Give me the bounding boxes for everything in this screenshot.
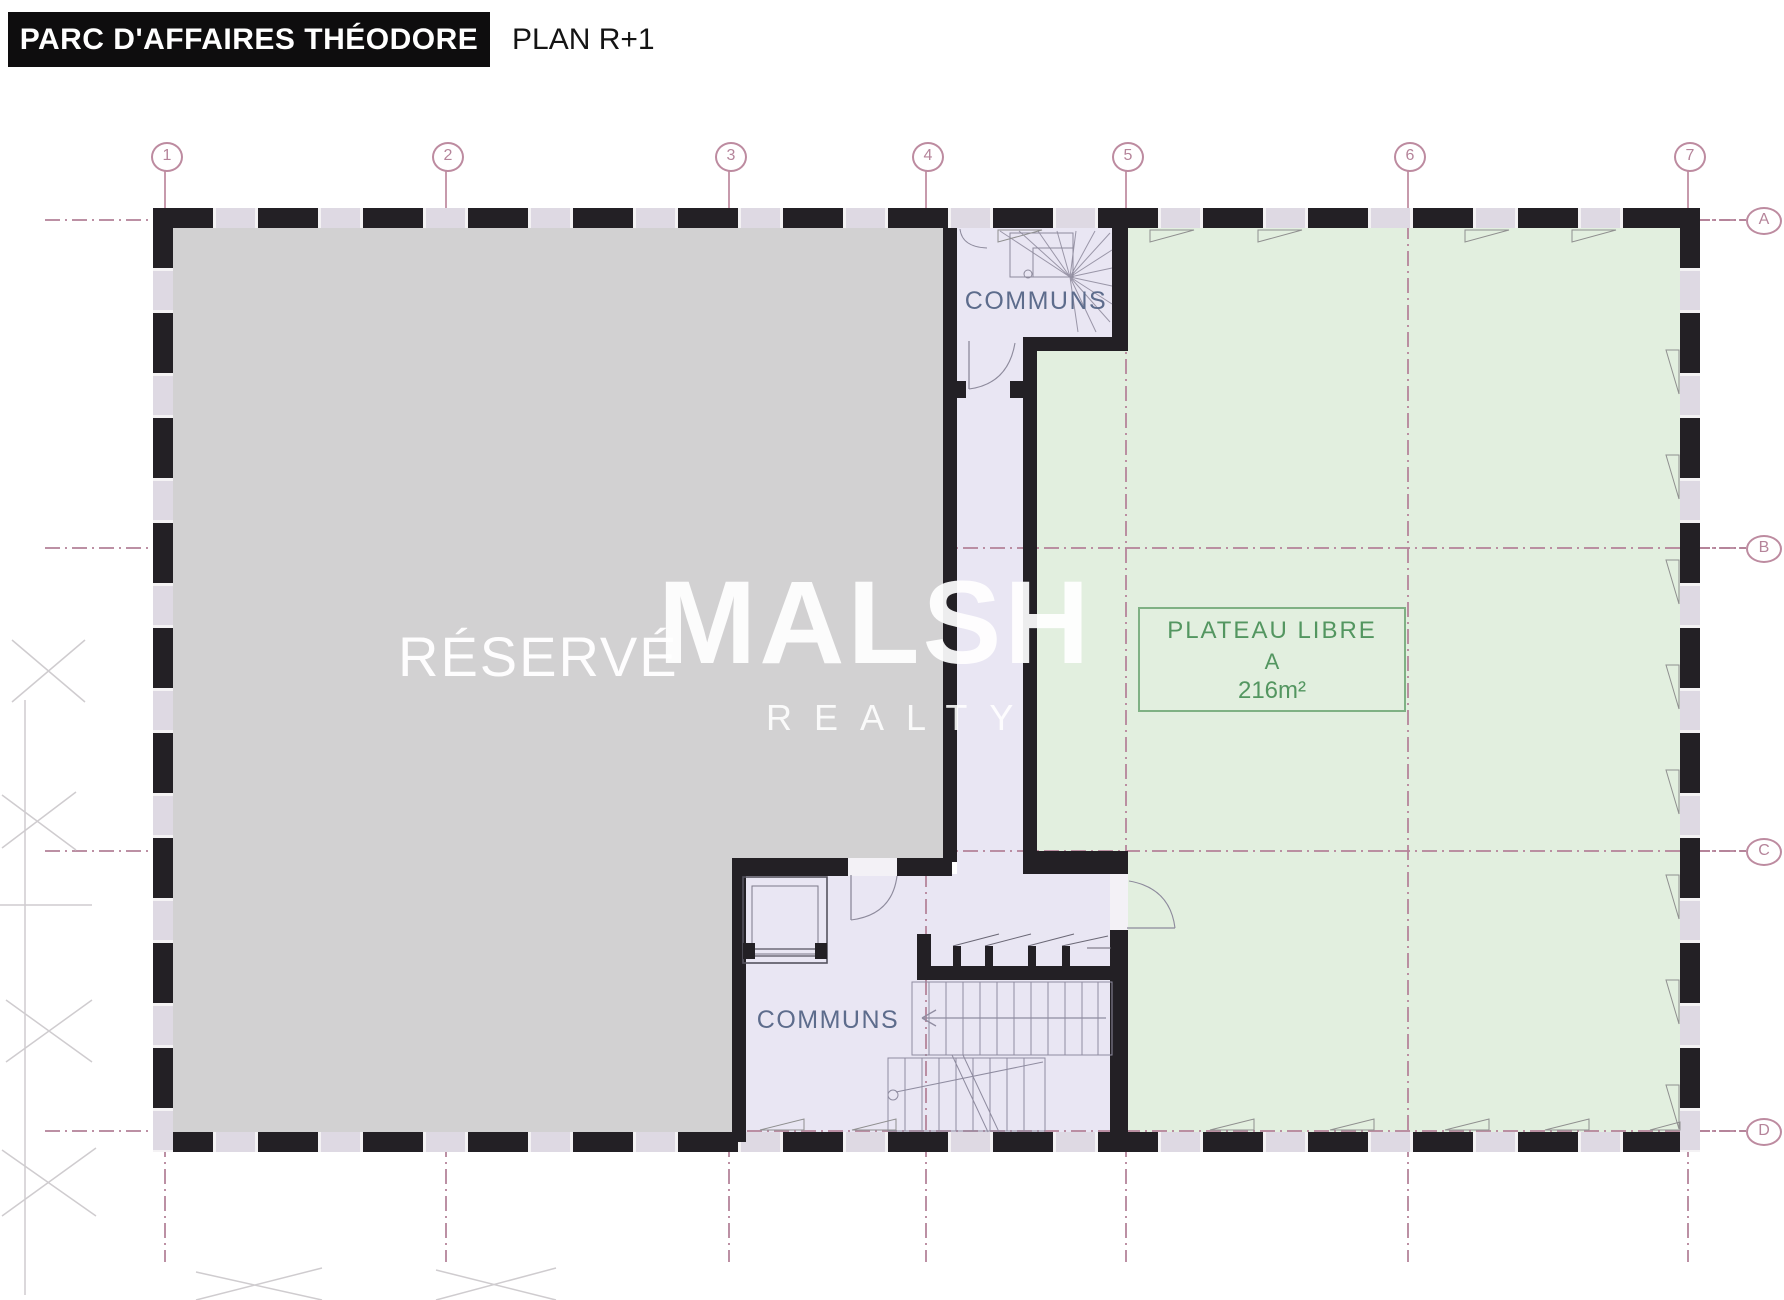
grid-marker-row-b: B: [1746, 535, 1782, 563]
commons-top-label: COMMUNS: [958, 287, 1114, 316]
grid-marker-row-a: A: [1746, 207, 1782, 235]
wall-west: [153, 208, 173, 1152]
grid-marker-col-3: 3: [715, 142, 747, 172]
plateau-area: 216m²: [1140, 677, 1404, 705]
wall-commons-bottom-west: [732, 858, 746, 1142]
grid-marker-col-5: 5: [1112, 142, 1144, 172]
wall-commons-bottom-north-right: [1023, 851, 1128, 874]
wall-commons-bottom-north-left1: [732, 858, 848, 876]
leader-col-4: [925, 168, 927, 208]
grid-line-col-6: [1407, 170, 1409, 1262]
project-title-banner: PARC D'AFFAIRES THÉODORE: [8, 12, 490, 67]
door-opening-reserved: [848, 858, 897, 876]
wall-corridor-west: [943, 228, 957, 862]
commons-bottom-label: COMMUNS: [748, 1006, 908, 1035]
leader-row-a: [1700, 219, 1746, 221]
leader-col-2: [445, 168, 447, 208]
leader-row-c: [1700, 850, 1746, 852]
wall-commons-top-south: [1023, 337, 1128, 351]
leader-row-d: [1700, 1130, 1746, 1132]
grid-marker-col-1: 1: [151, 142, 183, 172]
leader-row-b: [1700, 547, 1746, 549]
leader-col-5: [1125, 168, 1127, 208]
leader-col-6: [1407, 168, 1409, 208]
grid-marker-row-d: D: [1746, 1118, 1782, 1146]
wall-south: [153, 1132, 1700, 1152]
wall-commons-top-east: [1112, 228, 1128, 351]
door-opening-plateau: [1110, 874, 1128, 930]
grid-marker-col-6: 6: [1394, 142, 1426, 172]
grid-marker-col-2: 2: [432, 142, 464, 172]
brand-watermark: MALSH: [658, 555, 1093, 691]
plateau-title: PLATEAU LIBRE: [1140, 617, 1404, 645]
plateau-unit: A: [1140, 649, 1404, 675]
leader-col-3: [728, 168, 730, 208]
leader-col-7: [1687, 168, 1689, 208]
leader-col-1: [164, 168, 166, 208]
plan-level-label: PLAN R+1: [512, 12, 655, 67]
wall-north: [153, 208, 1700, 228]
grid-marker-col-4: 4: [912, 142, 944, 172]
wall-commons-bottom-east: [1110, 930, 1128, 1142]
wall-commons-bottom-north-left2: [897, 858, 952, 876]
floor-plan-page: COMMUNS COMMUNS PLATEAU LIBRE A 216m² RÉ…: [0, 0, 1784, 1300]
reserved-label: RÉSERVÉ: [398, 624, 679, 689]
brand-watermark-sub: REALTY: [766, 697, 1035, 739]
grid-marker-row-c: C: [1746, 838, 1782, 866]
wall-east: [1680, 208, 1700, 1152]
grid-marker-col-7: 7: [1674, 142, 1706, 172]
commons-top-room: [957, 228, 1112, 337]
plateau-label-box: PLATEAU LIBRE A 216m²: [1138, 607, 1406, 712]
